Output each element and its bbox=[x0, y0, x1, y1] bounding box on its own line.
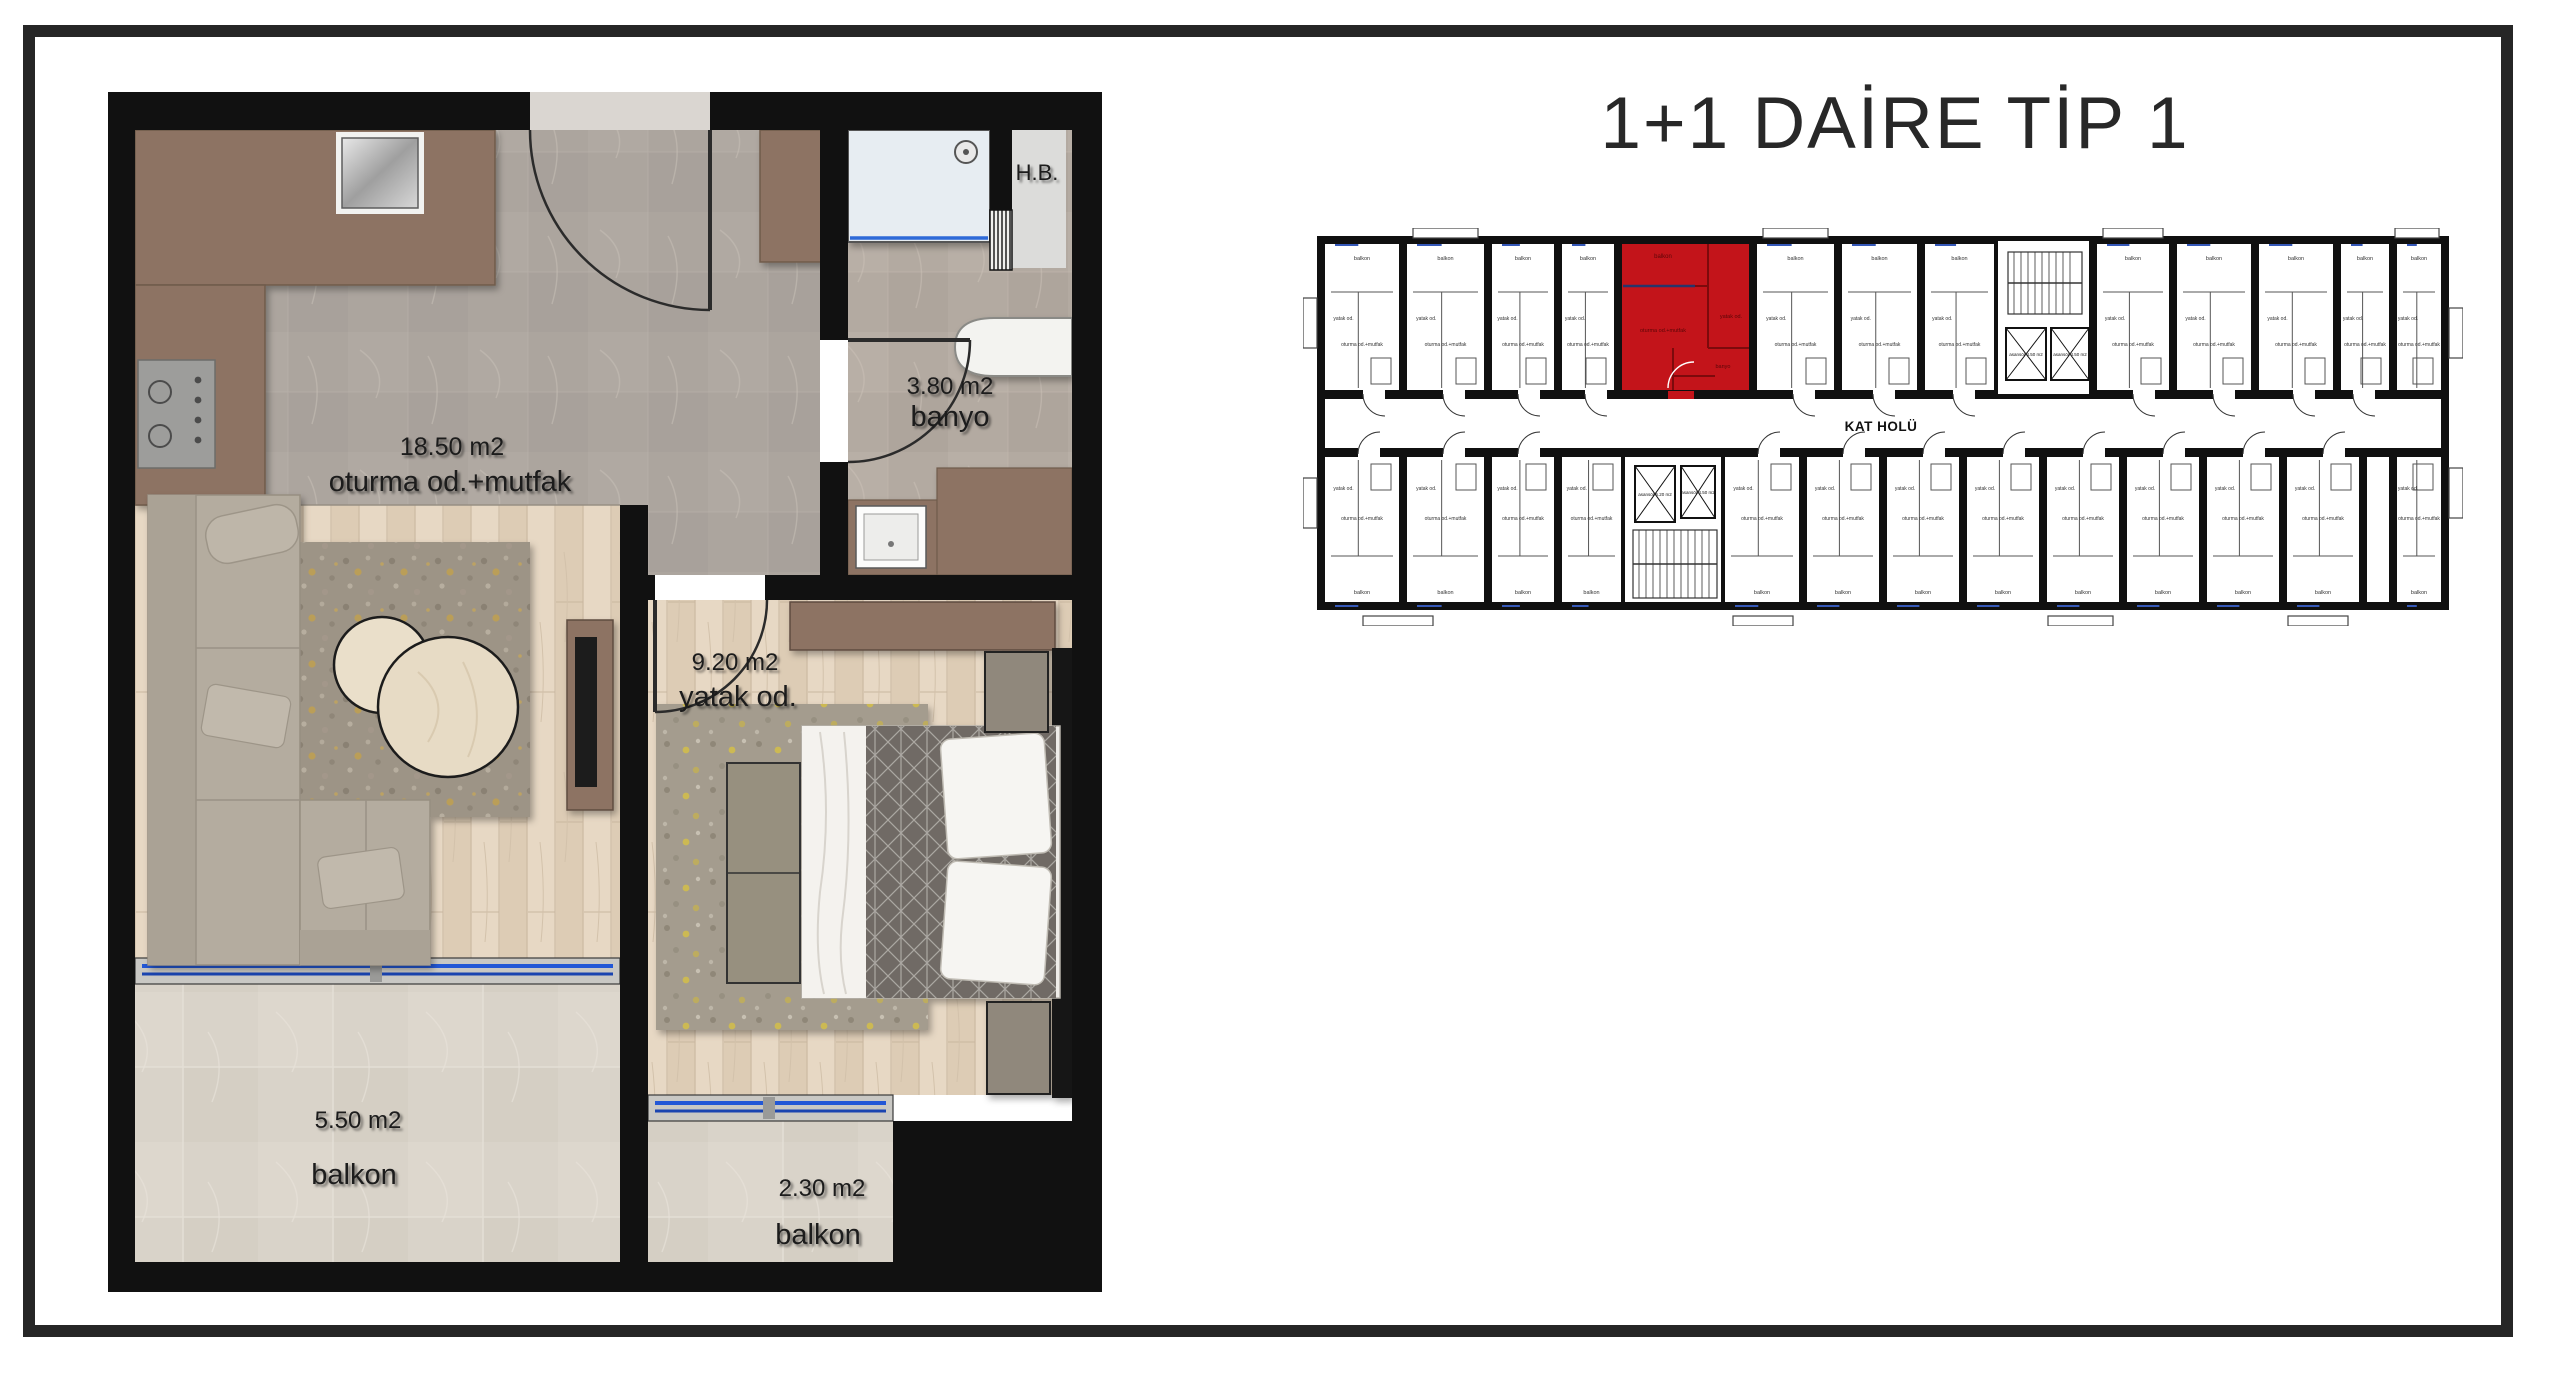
keyplan-unit-balcony-label: balkon bbox=[1871, 256, 1887, 262]
keyplan-unit-balcony-label: balkon bbox=[2411, 590, 2427, 596]
keyplan-wall bbox=[1554, 236, 1562, 399]
keyplan-end-jog bbox=[2449, 468, 2463, 518]
keyplan-unit-living-label: oturma od.+mutfak bbox=[1425, 342, 1467, 348]
keyplan-unit-balcony-label: balkon bbox=[1754, 590, 1770, 596]
keyplan-unit-balcony-label: balkon bbox=[2075, 590, 2091, 596]
keyplan-wall bbox=[1484, 448, 1492, 610]
keyplan-closet bbox=[2305, 358, 2325, 384]
keyplan-unit-bedroom-label: yatak od. bbox=[1720, 314, 1743, 320]
keyplan-unit-balcony-label: balkon bbox=[1515, 590, 1531, 596]
keyplan-unit-living-label: oturma od.+mutfak bbox=[1939, 342, 1981, 348]
keyplan-wall bbox=[1917, 236, 1925, 399]
keyplan-unit-balcony-label: balkon bbox=[1654, 254, 1672, 260]
keyplan-unit-living-label: oturma od.+mutfak bbox=[1341, 342, 1383, 348]
keyplan-unit-living-label: oturma od.+mutfak bbox=[1341, 516, 1383, 522]
keyplan-wall bbox=[1959, 448, 1967, 610]
tv bbox=[575, 637, 597, 787]
bathtub bbox=[955, 318, 1072, 376]
keyplan-unit-bedroom-label: yatak od. bbox=[2398, 486, 2418, 492]
keyplan-unit-living-label: oturma od.+mutfak bbox=[1822, 516, 1864, 522]
keyplan-door-gap bbox=[2133, 390, 2155, 400]
keyplan-balcony bbox=[2288, 616, 2348, 626]
keyplan-closet bbox=[2331, 464, 2351, 490]
keyplan-wall bbox=[1614, 236, 1622, 399]
keyplan-unit-bedroom-label: yatak od. bbox=[2055, 486, 2075, 492]
keyplan-door-gap bbox=[2353, 390, 2375, 400]
keyplan-closet bbox=[2171, 464, 2191, 490]
keyplan-wall bbox=[2279, 448, 2287, 610]
keyplan-unit-bedroom-label: yatak od. bbox=[1733, 486, 1753, 492]
keyplan-closet bbox=[2011, 464, 2031, 490]
nightstand bbox=[987, 1002, 1050, 1094]
keyplan-door-gap bbox=[1873, 390, 1895, 400]
keyplan-closet bbox=[1806, 358, 1826, 384]
keyplan-end-jog bbox=[1303, 478, 1317, 528]
keyplan-unit-bedroom-label: yatak od. bbox=[2185, 316, 2205, 322]
keyplan-wall bbox=[1879, 448, 1887, 610]
bath-area-label: 3.80 m2 bbox=[907, 373, 994, 400]
keyplan-door-gap bbox=[1585, 390, 1607, 400]
keyplan-unit-balcony-label: balkon bbox=[1787, 256, 1803, 262]
keyplan-wall bbox=[1399, 448, 1407, 610]
pillow bbox=[940, 733, 1052, 860]
bedroom-wardrobe bbox=[790, 602, 1055, 650]
keyplan-wall bbox=[2251, 236, 2259, 399]
keyplan-closet bbox=[1593, 464, 1613, 490]
keyplan-unit-living-label: oturma od.+mutfak bbox=[1859, 342, 1901, 348]
keyplan-unit-living-label: oturma od.+mutfak bbox=[1425, 516, 1467, 522]
balcony1-area-label: 5.50 m2 bbox=[315, 1107, 402, 1134]
bedroom-window bbox=[648, 1095, 893, 1121]
keyplan-closet bbox=[1889, 358, 1909, 384]
keyplan-unit-bedroom-label: yatak od. bbox=[1497, 316, 1517, 322]
keyplan-end-jog bbox=[2449, 308, 2463, 358]
keyplan-balcony bbox=[2048, 616, 2113, 626]
keyplan-door-gap bbox=[1758, 448, 1780, 458]
keyplan-unit-living-label: oturma od.+mutfak bbox=[1902, 516, 1944, 522]
keyplan-unit-living-label: oturma od.+mutfak bbox=[2193, 342, 2235, 348]
balcony2-area-label: 2.30 m2 bbox=[779, 1175, 866, 1202]
keyplan-balcony bbox=[1363, 616, 1433, 626]
keyplan-wall bbox=[2199, 448, 2207, 610]
keyplan-closet bbox=[1526, 358, 1546, 384]
keyplan-closet bbox=[2413, 358, 2433, 384]
keyplan-door-gap bbox=[1358, 448, 1380, 458]
entry-threshold bbox=[530, 92, 710, 130]
keyplan-unit-living-label: oturma od.+mutfak bbox=[1775, 342, 1817, 348]
cooktop bbox=[138, 360, 215, 468]
keyplan-door-gap bbox=[1518, 448, 1540, 458]
shaft bbox=[1012, 118, 1066, 268]
keyplan-unit-bedroom-label: yatak od. bbox=[1567, 486, 1587, 492]
living-name-label: oturma od.+mutfak bbox=[329, 466, 572, 498]
bed bbox=[802, 726, 1060, 998]
keyplan-elevator-label: asansör 6.20 m2 bbox=[1638, 492, 1672, 497]
keyplan-wall bbox=[2359, 448, 2367, 610]
keyplan-balcony bbox=[1763, 228, 1828, 238]
keyplan-unit-balcony-label: balkon bbox=[1915, 590, 1931, 596]
bath-cabinet bbox=[937, 468, 1072, 575]
keyplan-unit-living-label: oturma od.+mutfak bbox=[1640, 328, 1686, 334]
keyplan-elevator-label: asansör 4.50 m2 bbox=[2053, 352, 2087, 357]
keyplan-elevator-label: asansör 4.50 m2 bbox=[1681, 490, 1715, 495]
keyplan-wall bbox=[2119, 448, 2127, 610]
keyplan-door-gap bbox=[2083, 448, 2105, 458]
keyplan-door-gap bbox=[1793, 390, 1815, 400]
keyplan-door-gap bbox=[1518, 390, 1540, 400]
keyplan-unit-bedroom-label: yatak od. bbox=[2105, 316, 2125, 322]
keyplan-unit-bedroom-label: yatak od. bbox=[1895, 486, 1915, 492]
keyplan-unit-bedroom-label: yatak od. bbox=[1975, 486, 1995, 492]
keyplan-unit-bedroom-label: yatak od. bbox=[1766, 316, 1786, 322]
keyplan-wall bbox=[1834, 236, 1842, 399]
keyplan-unit-bedroom-label: yatak od. bbox=[1333, 486, 1353, 492]
keyplan-unit-living-label: oturma od.+mutfak bbox=[2275, 342, 2317, 348]
page: 18.50 m2 oturma od.+mutfak 3.80 m2 banyo… bbox=[0, 0, 2560, 1386]
keyplan-wall bbox=[1749, 236, 1757, 399]
keyplan-unit-bedroom-label: yatak od. bbox=[2343, 316, 2363, 322]
keyplan-unit-living-label: oturma od.+mutfak bbox=[2398, 342, 2440, 348]
sofa-pillow bbox=[317, 847, 405, 910]
keyplan-wall bbox=[2389, 448, 2397, 610]
keyplan-unit-balcony-label: balkon bbox=[1515, 256, 1531, 262]
keyplan-unit-balcony-label: balkon bbox=[2206, 256, 2222, 262]
keyplan-unit-bedroom-label: yatak od. bbox=[1815, 486, 1835, 492]
keyplan-wall bbox=[2441, 236, 2449, 610]
keyplan-unit-bedroom-label: yatak od. bbox=[1416, 316, 1436, 322]
keyplan-unit-balcony-label: balkon bbox=[1354, 256, 1370, 262]
keyplan-unit-balcony-label: balkon bbox=[2411, 256, 2427, 262]
keyplan-door-gap bbox=[2243, 448, 2265, 458]
keyplan-closet bbox=[2223, 358, 2243, 384]
keyplan-closet bbox=[1931, 464, 1951, 490]
keyplan-unit-bedroom-label: yatak od. bbox=[2215, 486, 2235, 492]
keyplan-unit-balcony-label: balkon bbox=[1835, 590, 1851, 596]
keyplan-unit-living-label: oturma od.+mutfak bbox=[1567, 342, 1609, 348]
keyplan-door-gap bbox=[1363, 390, 1385, 400]
keyplan-closet bbox=[1371, 358, 1391, 384]
keyplan-balcony bbox=[1733, 616, 1793, 626]
keyplan-unit-bedroom-label: yatak od. bbox=[1565, 316, 1585, 322]
keyplan-door-gap bbox=[2323, 448, 2345, 458]
keyplan-unit-balcony-label: balkon bbox=[1995, 590, 2011, 596]
keyplan-unit-balcony-label: balkon bbox=[2125, 256, 2141, 262]
keyplan-closet bbox=[1966, 358, 1986, 384]
keyplan-unit-living-label: oturma od.+mutfak bbox=[2142, 516, 2184, 522]
page-title: 1+1 DAİRE TİP 1 bbox=[1560, 82, 2230, 165]
keyplan-unit-bedroom-label: yatak od. bbox=[1932, 316, 1952, 322]
keyplan-closet bbox=[2361, 358, 2381, 384]
keyplan-wall bbox=[1399, 236, 1407, 399]
keyplan-core bbox=[1998, 241, 2089, 394]
shaft-label: H.B. bbox=[1016, 160, 1059, 185]
keyplan-door-gap bbox=[2293, 390, 2315, 400]
keyplan-unit-living-label: oturma od.+mutfak bbox=[1982, 516, 2024, 522]
keyplan-unit-bedroom-label: yatak od. bbox=[1333, 316, 1353, 322]
key-plan: balkonoturma od.+mutfakyatak od.banyobal… bbox=[1303, 228, 2463, 626]
kitchen-counter-top bbox=[135, 130, 495, 285]
keyplan-door-gap bbox=[1443, 390, 1465, 400]
keyplan-unit-living-label: oturma od.+mutfak bbox=[2398, 516, 2440, 522]
keyplan-closet bbox=[1456, 464, 1476, 490]
balcony2-name-label: balkon bbox=[775, 1219, 860, 1251]
keyplan-unit-living-label: oturma od.+mutfak bbox=[2112, 342, 2154, 348]
keyplan-unit-balcony-label: balkon bbox=[1951, 256, 1967, 262]
keyplan-unit-bath-label: banyo bbox=[1716, 364, 1731, 370]
keyplan-balcony bbox=[2395, 228, 2439, 238]
keyplan-unit-bedroom-label: yatak od. bbox=[2135, 486, 2155, 492]
keyplan-wall bbox=[2039, 448, 2047, 610]
keyplan-end-jog bbox=[1303, 298, 1317, 348]
keyplan-unit-balcony-label: balkon bbox=[2235, 590, 2251, 596]
keyplan-unit-balcony-label: balkon bbox=[2315, 590, 2331, 596]
keyplan-unit-bedroom-label: yatak od. bbox=[2398, 316, 2418, 322]
keyplan-unit-living-label: oturma od.+mutfak bbox=[1502, 342, 1544, 348]
keyplan-unit-balcony-label: balkon bbox=[1580, 256, 1596, 262]
keyplan-unit-living-label: oturma od.+mutfak bbox=[2344, 342, 2386, 348]
keyplan-door-gap bbox=[1668, 391, 1694, 399]
keyplan-unit-bedroom-label: yatak od. bbox=[1851, 316, 1871, 322]
coffee-table-large bbox=[378, 637, 518, 777]
pillow bbox=[940, 861, 1052, 986]
apartment-floor-plan: 18.50 m2 oturma od.+mutfak 3.80 m2 banyo… bbox=[108, 92, 1102, 1292]
keyplan-unit-balcony-label: balkon bbox=[1583, 590, 1599, 596]
keyplan-elevator-label: asansör 4.50 m2 bbox=[2009, 352, 2043, 357]
entry-closet bbox=[760, 130, 823, 262]
keyplan-corridor-label: KAT HOLÜ bbox=[1845, 419, 1918, 434]
keyplan-unit-balcony-label: balkon bbox=[1437, 590, 1453, 596]
vent-grill-icon bbox=[990, 210, 1012, 270]
keyplan-unit-balcony-label: balkon bbox=[2288, 256, 2304, 262]
keyplan-unit-bedroom-label: yatak od. bbox=[1416, 486, 1436, 492]
keyplan-unit-balcony-label: balkon bbox=[2155, 590, 2171, 596]
keyplan-unit-living-label: oturma od.+mutfak bbox=[2062, 516, 2104, 522]
keyplan-unit-balcony-label: balkon bbox=[1354, 590, 1370, 596]
keyplan-unit-balcony-label: balkon bbox=[2357, 256, 2373, 262]
keyplan-unit-living-label: oturma od.+mutfak bbox=[2222, 516, 2264, 522]
keyplan-wall bbox=[2089, 236, 2097, 399]
keyplan-unit-living-label: oturma od.+mutfak bbox=[1571, 516, 1613, 522]
keyplan-closet bbox=[1586, 358, 1606, 384]
keyplan-wall bbox=[1317, 236, 1325, 610]
bed-name-label: yatak od. bbox=[679, 681, 797, 713]
keyplan-door-gap bbox=[2003, 448, 2025, 458]
keyplan-closet bbox=[1851, 464, 1871, 490]
keyplan-balcony bbox=[1413, 228, 1478, 238]
bath-name-label: banyo bbox=[910, 401, 989, 433]
keyplan-closet bbox=[1526, 464, 1546, 490]
keyplan-unit-living-label: oturma od.+mutfak bbox=[1502, 516, 1544, 522]
keyplan-door-gap bbox=[2213, 390, 2235, 400]
keyplan-closet bbox=[2091, 464, 2111, 490]
keyplan-wall bbox=[2389, 236, 2397, 399]
keyplan-unit-balcony-label: balkon bbox=[1437, 256, 1453, 262]
keyplan-balcony bbox=[2103, 228, 2163, 238]
keyplan-unit-living-label: oturma od.+mutfak bbox=[1741, 516, 1783, 522]
keyplan-closet bbox=[1771, 464, 1791, 490]
nightstand bbox=[985, 652, 1048, 732]
keyplan-closet bbox=[1456, 358, 1476, 384]
keyplan-wall bbox=[2333, 236, 2341, 399]
kitchen-sink bbox=[342, 138, 418, 208]
keyplan-unit-bedroom-label: yatak od. bbox=[2295, 486, 2315, 492]
keyplan-closet bbox=[2251, 464, 2271, 490]
keyplan-closet bbox=[2141, 358, 2161, 384]
keyplan-wall bbox=[2169, 236, 2177, 399]
balcony1-name-label: balkon bbox=[311, 1159, 396, 1191]
keyplan-door-gap bbox=[1443, 448, 1465, 458]
bed-area-label: 9.20 m2 bbox=[692, 649, 779, 676]
keyplan-door-gap bbox=[1953, 390, 1975, 400]
keyplan-door-gap bbox=[2163, 448, 2185, 458]
keyplan-wall bbox=[1799, 448, 1807, 610]
keyplan-door-gap bbox=[1923, 448, 1945, 458]
keyplan-wall bbox=[1554, 448, 1562, 610]
keyplan-door-gap bbox=[1843, 448, 1865, 458]
keyplan-unit-bedroom-label: yatak od. bbox=[2267, 316, 2287, 322]
keyplan-wall bbox=[1484, 236, 1492, 399]
keyplan-unit-bedroom-label: yatak od. bbox=[1497, 486, 1517, 492]
keyplan-closet bbox=[1371, 464, 1391, 490]
living-area-label: 18.50 m2 bbox=[400, 433, 504, 461]
keyplan-unit-living-label: oturma od.+mutfak bbox=[2302, 516, 2344, 522]
